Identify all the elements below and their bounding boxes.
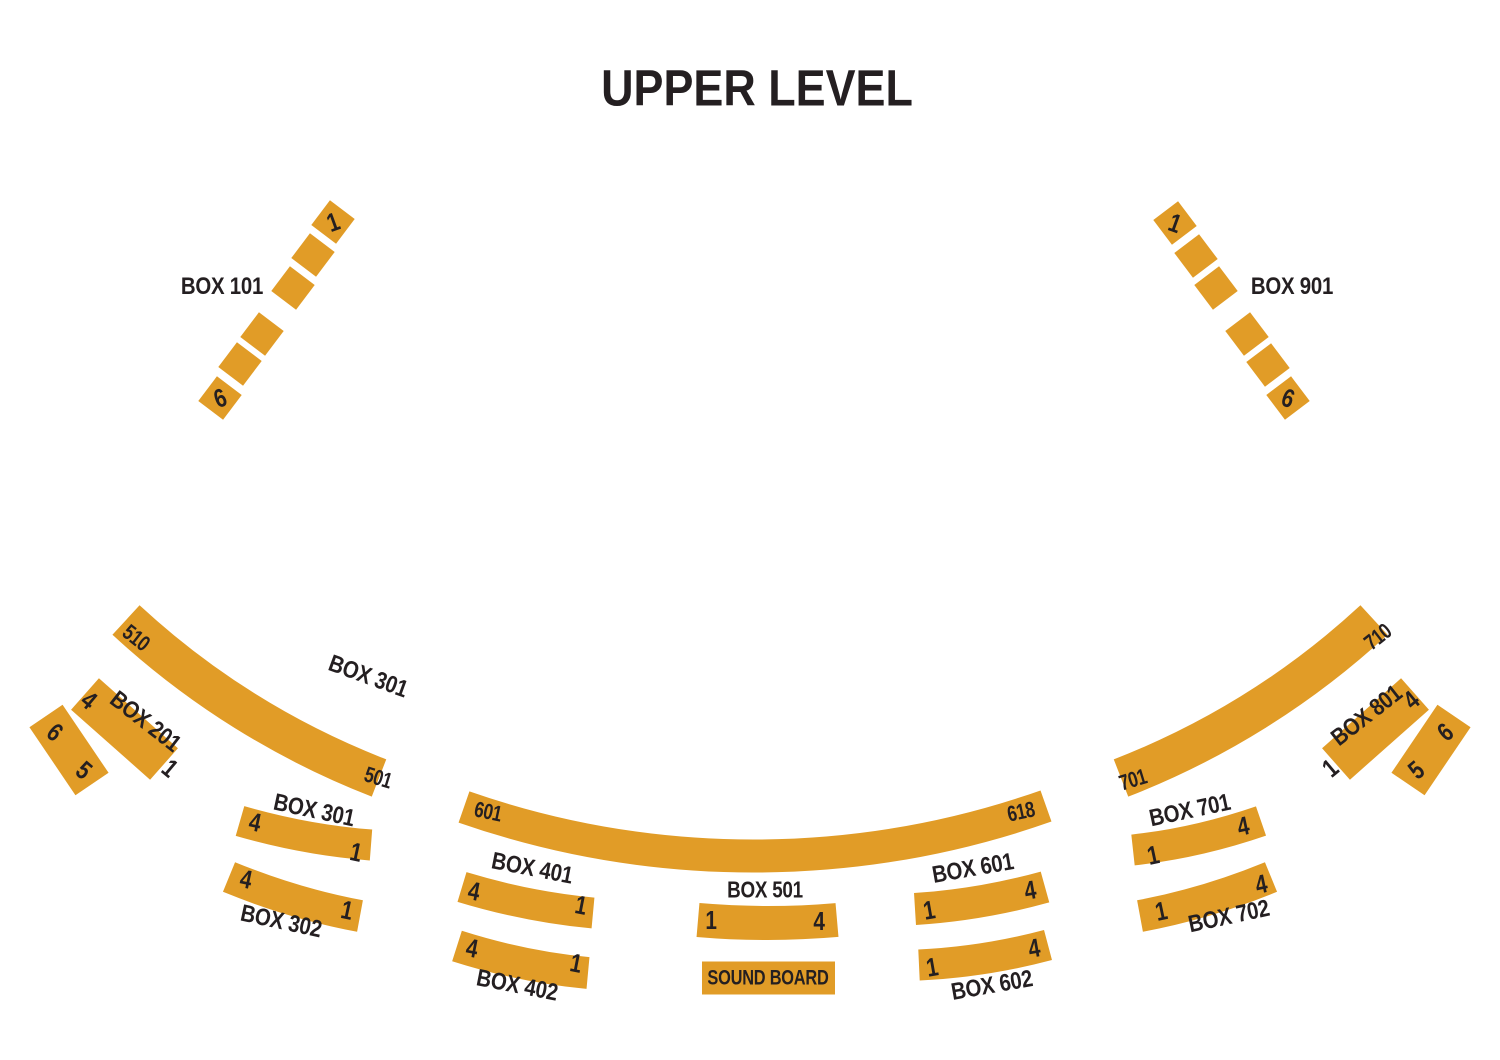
box-101-label: BOX 101 [181,275,263,299]
page-title: UPPER LEVEL [601,63,913,114]
row-600-seat-618-number: 618 [1005,798,1036,825]
box-101-seat-4[interactable] [240,312,283,355]
box-901-seat-3[interactable] [1194,266,1237,309]
box-101-seat-5[interactable] [218,342,261,385]
box-501-seat-1-number: 1 [705,907,716,933]
seating-map: UPPER LEVEL BOX 101 1 6 BOX 901 1 6 BOX … [0,0,1500,1060]
box-101-seat-2[interactable] [291,233,334,276]
box-101-seat-3[interactable] [271,266,314,309]
box-501-seat-4-number: 4 [813,908,824,934]
row-600-band[interactable] [464,806,1046,856]
sound-board-label: SOUND BOARD [707,968,828,989]
box-901-seat-2[interactable] [1174,234,1217,277]
box-901-seat-4[interactable] [1225,312,1268,355]
box-901-seat-5[interactable] [1246,343,1289,386]
box-501-label: BOX 501 [727,879,803,902]
row-600-seat-601-number: 601 [472,798,503,825]
box-901-label: BOX 901 [1251,275,1333,299]
